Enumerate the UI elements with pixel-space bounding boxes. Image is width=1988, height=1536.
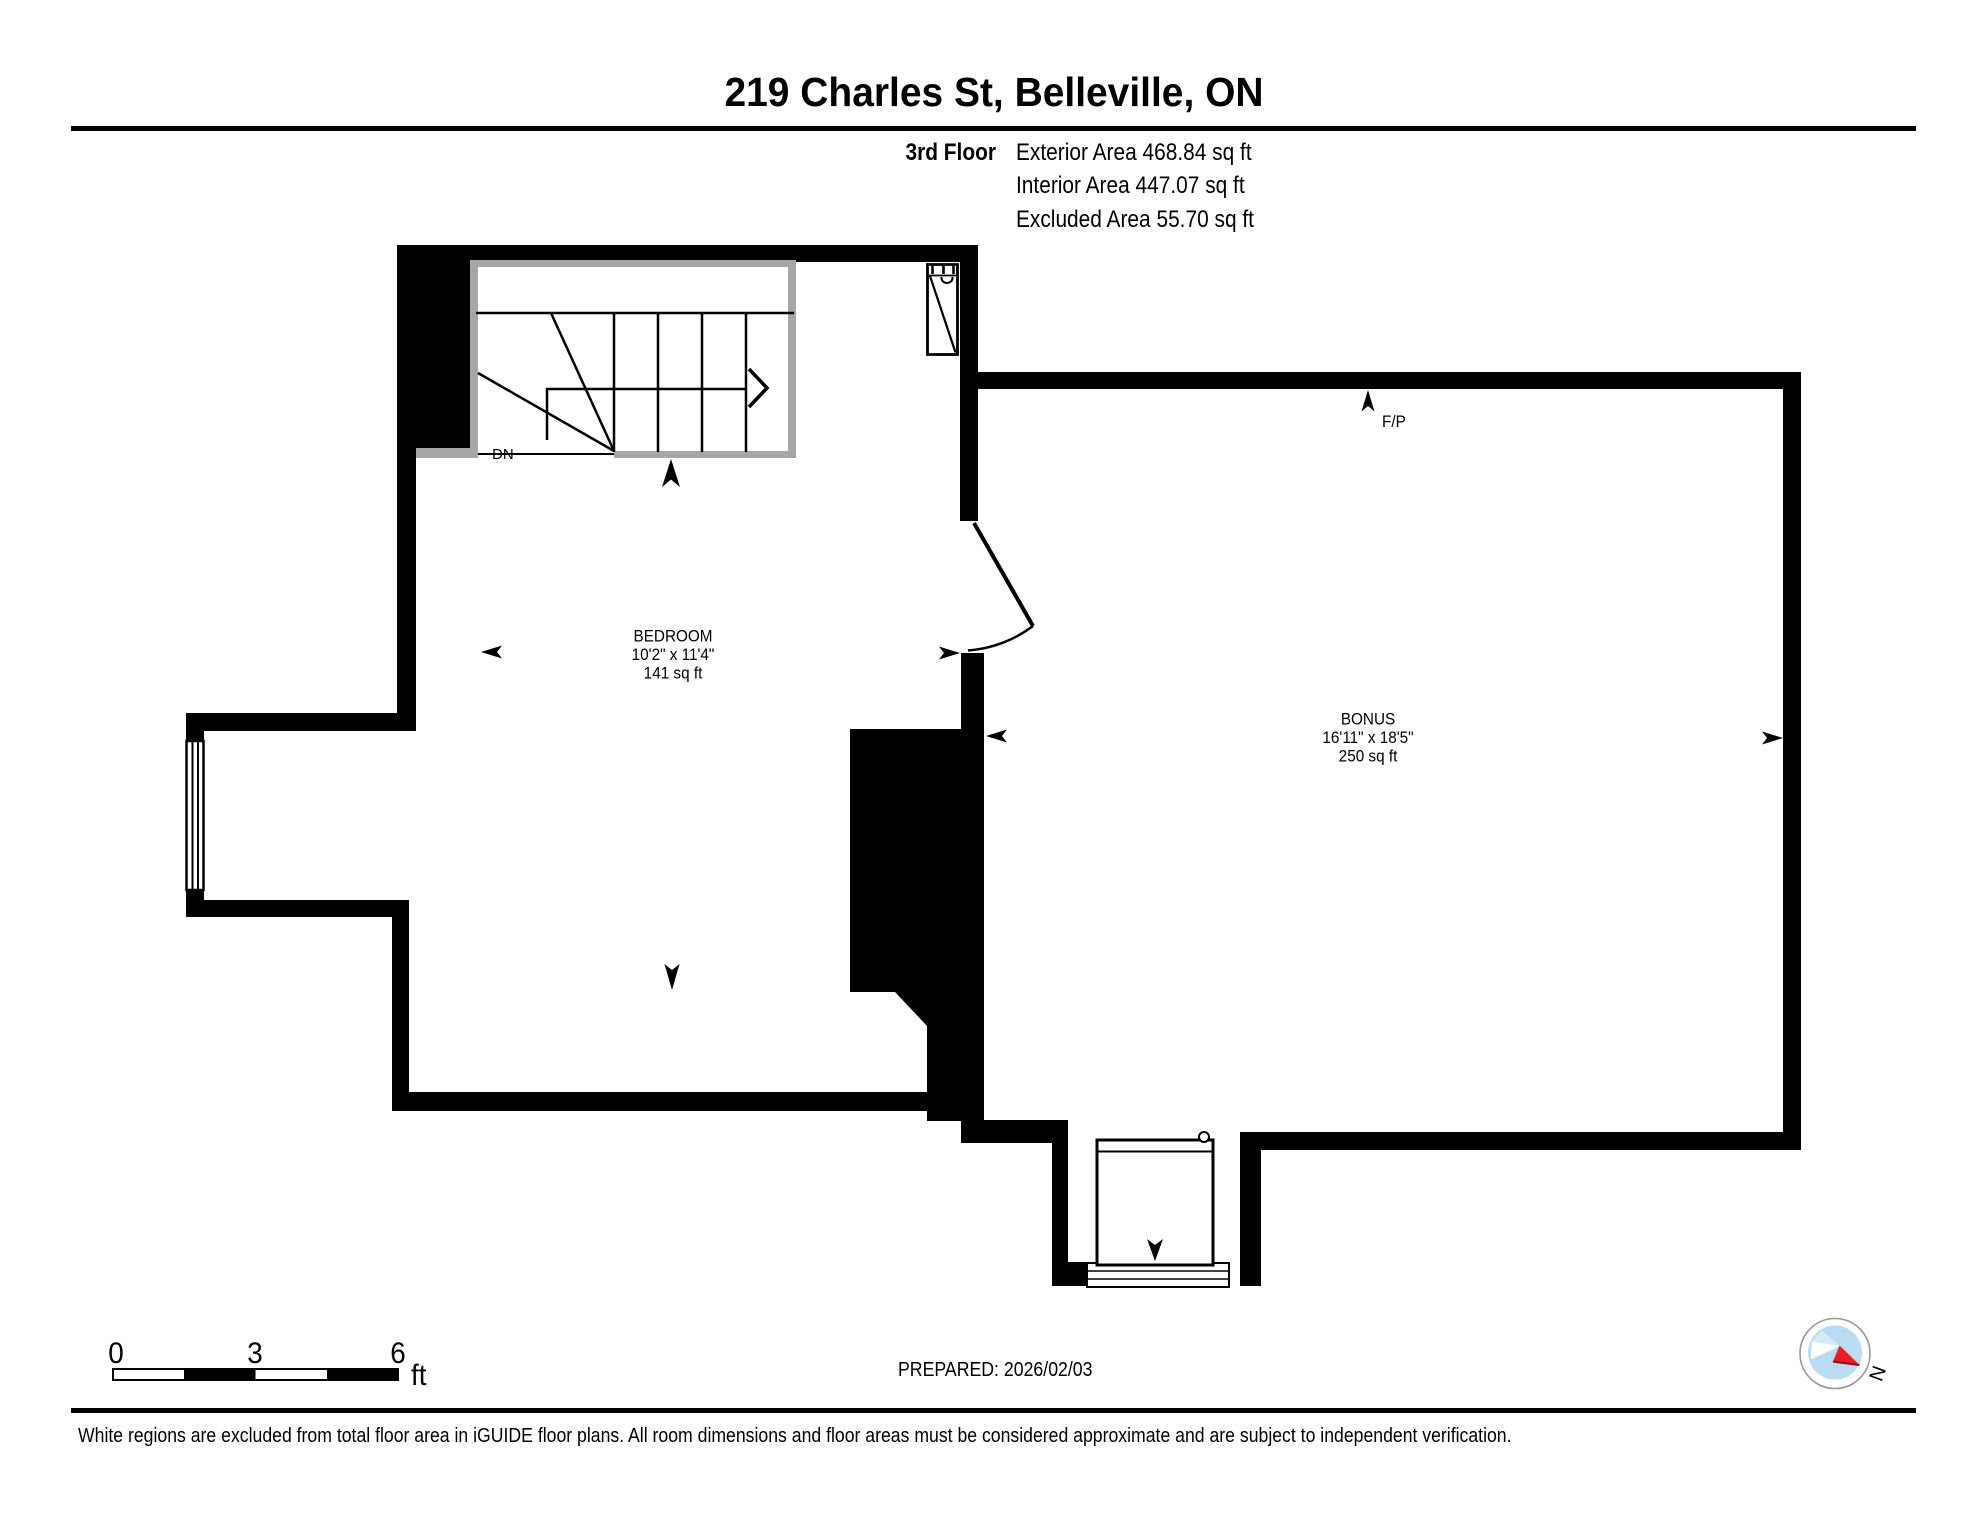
svg-text:BEDROOM: BEDROOM <box>634 627 713 646</box>
svg-text:16'11" x 18'5": 16'11" x 18'5" <box>1322 728 1413 747</box>
svg-text:10'2" x 11'4": 10'2" x 11'4" <box>632 645 715 664</box>
svg-text:3: 3 <box>247 1337 263 1370</box>
svg-text:N: N <box>1864 1362 1890 1383</box>
svg-text:250 sq ft: 250 sq ft <box>1339 747 1398 766</box>
svg-text:DN: DN <box>492 446 514 463</box>
svg-text:6: 6 <box>390 1337 406 1370</box>
svg-text:ft: ft <box>411 1359 426 1392</box>
svg-text:141 sq ft: 141 sq ft <box>644 664 703 683</box>
svg-text:BONUS: BONUS <box>1341 710 1396 729</box>
svg-text:F/P: F/P <box>1382 412 1406 431</box>
svg-text:0: 0 <box>108 1337 124 1370</box>
